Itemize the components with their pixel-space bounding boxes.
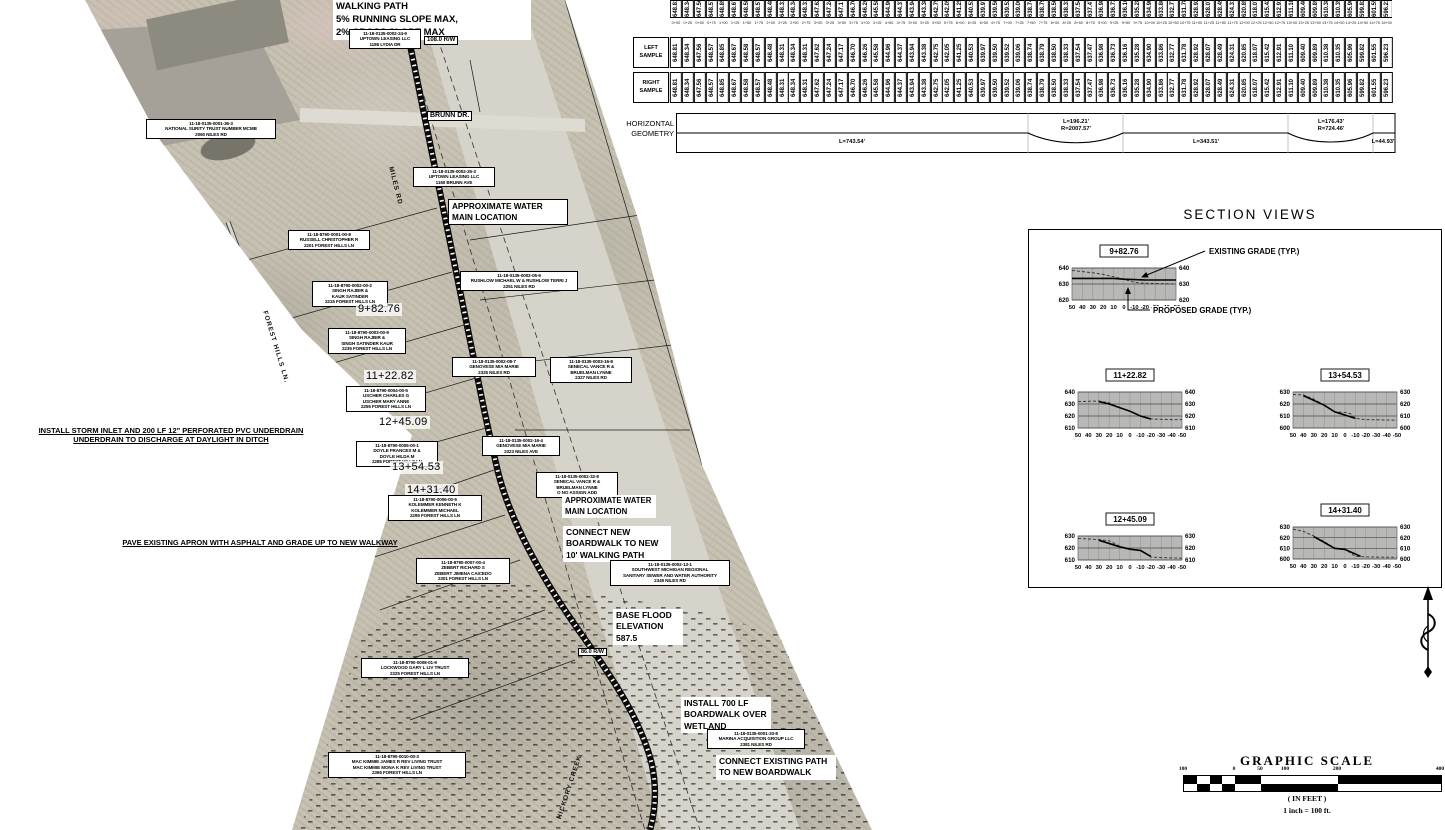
station-cell: 2+25 bbox=[777, 21, 789, 26]
right-sample-cell: 640.53 bbox=[966, 72, 978, 103]
map-station-12-45: 12+45.09 bbox=[377, 416, 430, 429]
svg-text:30: 30 bbox=[1090, 305, 1096, 311]
station-cell: 14+00 bbox=[1333, 21, 1345, 26]
grade-cell: 609.89 bbox=[1310, 0, 1322, 18]
station-cell: 5+75 bbox=[942, 21, 954, 26]
svg-text:13+54.53: 13+54.53 bbox=[1328, 371, 1362, 380]
left-sample-cell: 641.25 bbox=[954, 37, 966, 68]
right-sample-cell: 648.31 bbox=[800, 72, 812, 103]
left-sample-cell: 636.16 bbox=[1120, 37, 1132, 68]
left-sample-cell: 647.56 bbox=[694, 37, 706, 68]
station-cell: 3+75 bbox=[848, 21, 860, 26]
scale-tick-label: 50 bbox=[1257, 766, 1263, 772]
svg-text:40: 40 bbox=[1300, 564, 1306, 570]
parcel-genovese-2323: 11-18-0135-0002-16-4GENOVESE MIA MARIE23… bbox=[482, 436, 560, 456]
station-cell: 13+75 bbox=[1321, 21, 1333, 26]
map-station-9-82: 9+82.76 bbox=[356, 303, 402, 316]
left-sample-cell: 638.74 bbox=[1025, 37, 1037, 68]
grade-cell: 647.24 bbox=[824, 0, 836, 18]
svg-text:L=176.43': L=176.43' bbox=[1318, 119, 1345, 125]
svg-text:620: 620 bbox=[1280, 401, 1291, 408]
left-sample-cell: 611.10 bbox=[1286, 37, 1298, 68]
station-cell: 10+75 bbox=[1179, 21, 1191, 26]
left-sample-cell: 618.07 bbox=[1250, 37, 1262, 68]
water-main-note-2: APPROXIMATE WATERMAIN LOCATION bbox=[562, 495, 656, 518]
station-cell: 3+00 bbox=[812, 21, 824, 26]
left-sample-cell: 648.34 bbox=[788, 37, 800, 68]
right-sample-cell: 648.34 bbox=[788, 72, 800, 103]
svg-text:0: 0 bbox=[1343, 433, 1346, 439]
left-sample-cell: 648.48 bbox=[765, 37, 777, 68]
station-cell: 15+00 bbox=[1381, 21, 1393, 26]
station-cell: 14+75 bbox=[1369, 21, 1381, 26]
station-cell: 9+75 bbox=[1132, 21, 1144, 26]
right-sample-cell: 648.48 bbox=[765, 72, 777, 103]
left-sample-cell: 632.77 bbox=[1167, 37, 1179, 68]
grade-cell: 643.94 bbox=[907, 0, 919, 18]
install-700-note: INSTALL 700 LFBOARDWALK OVERWETLAND bbox=[681, 697, 771, 733]
grade-cell: 596.23 bbox=[1381, 0, 1393, 18]
left-sample-cell: 646.26 bbox=[860, 37, 872, 68]
station-cell: 6+25 bbox=[966, 21, 978, 26]
svg-text:-40: -40 bbox=[1382, 564, 1390, 570]
grade-cell: 638.33 bbox=[1061, 0, 1073, 18]
right-sample-cell: 643.38 bbox=[919, 72, 931, 103]
svg-text:-50: -50 bbox=[1178, 565, 1186, 571]
svg-text:10: 10 bbox=[1110, 305, 1116, 311]
station-cell: 13+25 bbox=[1298, 21, 1310, 26]
svg-text:-50: -50 bbox=[1393, 564, 1401, 570]
grade-cell: 643.38 bbox=[919, 0, 931, 18]
svg-text:-10: -10 bbox=[1136, 565, 1144, 571]
svg-text:630: 630 bbox=[1065, 401, 1076, 408]
right-sample-cell: 596.23 bbox=[1381, 72, 1393, 103]
station-cell: 11+50 bbox=[1215, 21, 1227, 26]
base-flood-note: BASE FLOODELEVATION587.5 bbox=[613, 609, 683, 645]
svg-text:40: 40 bbox=[1300, 433, 1306, 439]
left-sample-cell: 605.96 bbox=[1345, 37, 1357, 68]
parcel-uptown-brunn: 11-18-0135-0002-25-3UPTOWN LEASING LLC11… bbox=[413, 167, 495, 187]
grade-cell: 648.34 bbox=[788, 0, 800, 18]
parcel-rushlow: 11-18-0135-0002-05-9RUSHLOW MICHAEL W & … bbox=[460, 271, 578, 291]
grade-cell: 610.35 bbox=[1333, 0, 1345, 18]
left-sample-cell: 612.91 bbox=[1274, 37, 1286, 68]
graphic-scale-bar bbox=[1183, 775, 1442, 792]
svg-text:-30: -30 bbox=[1372, 433, 1380, 439]
svg-text:-20: -20 bbox=[1141, 305, 1149, 311]
right-sample-cell: 646.26 bbox=[860, 72, 872, 103]
grade-cell: 639.97 bbox=[978, 0, 990, 18]
svg-text:600: 600 bbox=[1400, 425, 1411, 432]
left-sample-cell: 599.82 bbox=[1357, 37, 1369, 68]
left-sample-cell: 638.79 bbox=[1037, 37, 1049, 68]
grade-cell: 640.53 bbox=[966, 0, 978, 18]
svg-text:-40: -40 bbox=[1382, 433, 1390, 439]
parcel-uptown-lydia: 11-18-0135-0002-24-9UPTOWN LEASING LLC11… bbox=[349, 29, 421, 49]
svg-text:30: 30 bbox=[1311, 564, 1317, 570]
svg-text:640: 640 bbox=[1065, 389, 1076, 396]
parcel-genovese-2325: 11-18-0135-0002-08-7GENOVESE MIA MARIE23… bbox=[452, 357, 536, 377]
grade-cell: 648.31 bbox=[777, 0, 789, 18]
svg-text:-20: -20 bbox=[1147, 565, 1155, 571]
grade-cell: 648.58 bbox=[741, 0, 753, 18]
rw-108-label: 108.0 R/W bbox=[424, 36, 458, 45]
station-cell: 5+25 bbox=[919, 21, 931, 26]
grade-cell: 648.34 bbox=[682, 0, 694, 18]
grade-cell: 637.47 bbox=[1085, 0, 1097, 18]
svg-text:14+31.40: 14+31.40 bbox=[1328, 506, 1362, 515]
right-sample-cell: 638.50 bbox=[1049, 72, 1061, 103]
svg-text:L=196.21': L=196.21' bbox=[1063, 119, 1090, 125]
station-cell: 1+25 bbox=[729, 21, 741, 26]
parcel-singh-satinder: 11-18-8790-0003-00-9SINGH RAJBIR &SINGH … bbox=[328, 328, 406, 354]
svg-text:640: 640 bbox=[1059, 265, 1070, 272]
left-sample-cell: 637.47 bbox=[1085, 37, 1097, 68]
station-cell: 4+00 bbox=[860, 21, 872, 26]
left-sample-cell: 642.75 bbox=[931, 37, 943, 68]
station-cell: 14+25 bbox=[1345, 21, 1357, 26]
left-sample-cell: 628.92 bbox=[1191, 37, 1203, 68]
station-cell: 3+25 bbox=[824, 21, 836, 26]
svg-text:-40: -40 bbox=[1167, 433, 1175, 439]
right-sample-cell: 647.17 bbox=[836, 72, 848, 103]
svg-text:610: 610 bbox=[1400, 413, 1411, 420]
left-sample-cell: 633.86 bbox=[1156, 37, 1168, 68]
svg-text:600: 600 bbox=[1280, 556, 1291, 563]
station-cell: 12+75 bbox=[1274, 21, 1286, 26]
grade-cell: 636.98 bbox=[1096, 0, 1108, 18]
right-sample-cell: 610.35 bbox=[1333, 72, 1345, 103]
right-sample-cell: 628.07 bbox=[1203, 72, 1215, 103]
grade-cell: 632.77 bbox=[1167, 0, 1179, 18]
svg-text:-10: -10 bbox=[1351, 564, 1359, 570]
right-sample-cell: 639.97 bbox=[978, 72, 990, 103]
grade-cell: 636.73 bbox=[1108, 0, 1120, 18]
svg-text:40: 40 bbox=[1085, 433, 1091, 439]
parcel-kolemmer: 11-18-8790-0006-00-5KOLEMMER KENNETH KKO… bbox=[388, 495, 482, 521]
right-sample-cell: 648.34 bbox=[682, 72, 694, 103]
right-sample-cell: 648.57 bbox=[753, 72, 765, 103]
svg-text:10: 10 bbox=[1116, 565, 1122, 571]
station-cell: 14+50 bbox=[1357, 21, 1369, 26]
profile-grade-row: 648.81648.34647.56648.57648.85648.67648.… bbox=[670, 0, 1392, 18]
station-cell: 8+75 bbox=[1085, 21, 1097, 26]
right-sample-cell: 638.74 bbox=[1025, 72, 1037, 103]
right-sample-cell: 620.85 bbox=[1239, 72, 1251, 103]
right-sample-cell: 642.05 bbox=[942, 72, 954, 103]
svg-text:12+45.09: 12+45.09 bbox=[1113, 515, 1147, 524]
right-sample-cell: 599.82 bbox=[1357, 72, 1369, 103]
station-cell: 1+00 bbox=[717, 21, 729, 26]
left-sample-cell: 609.40 bbox=[1298, 37, 1310, 68]
left-sample-cell: 601.55 bbox=[1369, 37, 1381, 68]
right-sample-cell: 634.90 bbox=[1144, 72, 1156, 103]
right-sample-cell: 648.58 bbox=[741, 72, 753, 103]
grade-cell: 639.52 bbox=[1002, 0, 1014, 18]
left-sample-cell: 628.49 bbox=[1215, 37, 1227, 68]
right-sample-cell: 609.40 bbox=[1298, 72, 1310, 103]
grade-cell: 628.49 bbox=[1215, 0, 1227, 18]
right-sample-cell: 636.16 bbox=[1120, 72, 1132, 103]
svg-text:10: 10 bbox=[1331, 433, 1337, 439]
parcel-senecal-noadd: 11-18-0135-0002-32-8SENECAL VANCE R &BRU… bbox=[536, 472, 618, 498]
grade-cell: 605.96 bbox=[1345, 0, 1357, 18]
svg-text:610: 610 bbox=[1280, 546, 1291, 553]
svg-text:-20: -20 bbox=[1147, 433, 1155, 439]
scale-tick-label: 100 bbox=[1179, 766, 1187, 772]
right-sample-cell: 638.33 bbox=[1061, 72, 1073, 103]
grade-cell: 610.38 bbox=[1321, 0, 1333, 18]
svg-text:-10: -10 bbox=[1130, 305, 1138, 311]
station-cell: 12+25 bbox=[1250, 21, 1262, 26]
grade-cell: 638.74 bbox=[1025, 0, 1037, 18]
right-sample-cell: 638.79 bbox=[1037, 72, 1049, 103]
station-cell: 13+00 bbox=[1286, 21, 1298, 26]
profile-left-sample-row: 648.81648.34647.56648.57648.85648.67648.… bbox=[670, 37, 1392, 68]
pave-apron-note: PAVE EXISTING APRON WITH ASPHALT AND GRA… bbox=[100, 539, 420, 548]
svg-text:630: 630 bbox=[1280, 389, 1291, 396]
svg-text:620: 620 bbox=[1280, 535, 1291, 542]
left-sample-cell: 610.38 bbox=[1321, 37, 1333, 68]
grade-cell: 601.55 bbox=[1369, 0, 1381, 18]
station-cell: 4+25 bbox=[871, 21, 883, 26]
grade-cell: 624.31 bbox=[1227, 0, 1239, 18]
left-sample-cell: 647.62 bbox=[812, 37, 824, 68]
svg-text:-30: -30 bbox=[1157, 433, 1165, 439]
svg-text:L=343.51': L=343.51' bbox=[1193, 139, 1220, 145]
grade-cell: 646.26 bbox=[860, 0, 872, 18]
right-sample-cell: 628.92 bbox=[1191, 72, 1203, 103]
svg-text:20: 20 bbox=[1100, 305, 1106, 311]
station-cell: 0+25 bbox=[682, 21, 694, 26]
left-sample-cell: 645.58 bbox=[871, 37, 883, 68]
right-sample-cell: 624.31 bbox=[1227, 72, 1239, 103]
grade-cell: 609.40 bbox=[1298, 0, 1310, 18]
station-cell: 0+75 bbox=[706, 21, 718, 26]
right-sample-cell: 615.42 bbox=[1262, 72, 1274, 103]
svg-text:620: 620 bbox=[1059, 297, 1070, 304]
svg-text:600: 600 bbox=[1400, 556, 1411, 563]
station-cell: 13+50 bbox=[1310, 21, 1322, 26]
svg-text:640: 640 bbox=[1179, 265, 1190, 272]
svg-text:620: 620 bbox=[1185, 413, 1196, 420]
station-cell: 4+50 bbox=[883, 21, 895, 26]
svg-text:20: 20 bbox=[1321, 564, 1327, 570]
svg-text:0: 0 bbox=[1343, 564, 1346, 570]
svg-text:30: 30 bbox=[1311, 433, 1317, 439]
north-arrow-icon bbox=[1414, 586, 1442, 678]
right-sample-cell: 647.62 bbox=[812, 72, 824, 103]
horizontal-geometry-diagram: L=743.54' L=196.21' R=2007.57' L=343.51'… bbox=[676, 113, 1396, 153]
left-sample-cell: 648.57 bbox=[706, 37, 718, 68]
grade-cell: 644.37 bbox=[895, 0, 907, 18]
parcel-marina: 11-18-0135-0001-33-8MARINA ACQUISITION G… bbox=[707, 729, 805, 749]
right-sample-cell: 618.07 bbox=[1250, 72, 1262, 103]
left-sample-label: LEFTSAMPLE bbox=[633, 37, 669, 68]
grade-cell: 620.85 bbox=[1239, 0, 1251, 18]
station-cell: 10+50 bbox=[1167, 21, 1179, 26]
grade-cell: 628.92 bbox=[1191, 0, 1203, 18]
svg-text:50: 50 bbox=[1075, 565, 1081, 571]
grade-cell: 637.54 bbox=[1073, 0, 1085, 18]
svg-text:620: 620 bbox=[1179, 297, 1190, 304]
right-sample-cell: 639.06 bbox=[1013, 72, 1025, 103]
connect-boardwalk-note: CONNECT NEWBOARDWALK TO NEW10' WALKING P… bbox=[563, 526, 671, 562]
grade-cell: 633.86 bbox=[1156, 0, 1168, 18]
svg-text:600: 600 bbox=[1280, 425, 1291, 432]
right-sample-cell: 637.47 bbox=[1085, 72, 1097, 103]
svg-text:610: 610 bbox=[1065, 425, 1076, 432]
left-sample-cell: 644.96 bbox=[883, 37, 895, 68]
left-sample-cell: 648.81 bbox=[670, 37, 682, 68]
station-cell: 10+00 bbox=[1144, 21, 1156, 26]
grade-cell: 599.82 bbox=[1357, 0, 1369, 18]
right-sample-cell: 611.10 bbox=[1286, 72, 1298, 103]
grade-cell: 639.06 bbox=[1013, 0, 1025, 18]
right-sample-cell: 646.70 bbox=[848, 72, 860, 103]
svg-text:610: 610 bbox=[1400, 546, 1411, 553]
grade-cell: 639.50 bbox=[990, 0, 1002, 18]
station-cell: 6+50 bbox=[978, 21, 990, 26]
station-cell: 8+25 bbox=[1061, 21, 1073, 26]
left-sample-cell: 643.38 bbox=[919, 37, 931, 68]
left-sample-cell: 636.98 bbox=[1096, 37, 1108, 68]
left-sample-cell: 638.50 bbox=[1049, 37, 1061, 68]
left-sample-cell: 620.85 bbox=[1239, 37, 1251, 68]
svg-text:R=724.46': R=724.46' bbox=[1318, 126, 1345, 132]
plan-sheet: WALKING PATH5% RUNNING SLOPE MAX,2% CROS… bbox=[0, 0, 1445, 830]
station-cell: 1+50 bbox=[741, 21, 753, 26]
left-sample-cell: 635.28 bbox=[1132, 37, 1144, 68]
right-sample-cell: 601.55 bbox=[1369, 72, 1381, 103]
street-brunn-dr: BRUNN DR. bbox=[427, 111, 472, 121]
parcel-lockwood: 11-18-8790-0008-01-9LOCKWOOD GARY L LIV … bbox=[361, 658, 469, 678]
existing-grade-annotation: EXISTING GRADE (TYP.) bbox=[1208, 247, 1300, 256]
right-sample-cell: 648.85 bbox=[717, 72, 729, 103]
svg-text:10: 10 bbox=[1331, 564, 1337, 570]
station-cell: 3+50 bbox=[836, 21, 848, 26]
grade-cell: 638.79 bbox=[1037, 0, 1049, 18]
left-sample-cell: 638.33 bbox=[1061, 37, 1073, 68]
right-sample-cell: 644.96 bbox=[883, 72, 895, 103]
svg-text:R=2007.57': R=2007.57' bbox=[1061, 126, 1092, 132]
left-sample-cell: 648.31 bbox=[777, 37, 789, 68]
right-sample-cell: 628.49 bbox=[1215, 72, 1227, 103]
left-sample-cell: 640.53 bbox=[966, 37, 978, 68]
svg-text:630: 630 bbox=[1179, 281, 1190, 288]
right-sample-cell: 635.28 bbox=[1132, 72, 1144, 103]
svg-text:0: 0 bbox=[1128, 565, 1131, 571]
storm-inlet-note: INSTALL STORM INLET AND 200 LF 12" PERFO… bbox=[30, 427, 312, 445]
svg-text:-40: -40 bbox=[1167, 565, 1175, 571]
proposed-grade-annotation: PROPOSED GRADE (TYP.) bbox=[1152, 306, 1252, 315]
svg-text:9+82.76: 9+82.76 bbox=[1109, 247, 1139, 256]
section-views-title: SECTION VIEWS bbox=[1140, 207, 1360, 222]
right-sample-cell: 648.31 bbox=[777, 72, 789, 103]
grade-cell: 635.28 bbox=[1132, 0, 1144, 18]
grade-cell: 648.81 bbox=[670, 0, 682, 18]
left-sample-cell: 634.90 bbox=[1144, 37, 1156, 68]
right-sample-cell: 639.52 bbox=[1002, 72, 1014, 103]
svg-text:40: 40 bbox=[1085, 565, 1091, 571]
right-sample-cell: 643.94 bbox=[907, 72, 919, 103]
map-station-13-54: 13+54.53 bbox=[390, 461, 443, 474]
station-cell: 10+25 bbox=[1156, 21, 1168, 26]
left-sample-cell: 624.31 bbox=[1227, 37, 1239, 68]
right-sample-cell: 641.25 bbox=[954, 72, 966, 103]
svg-text:10: 10 bbox=[1116, 433, 1122, 439]
left-sample-cell: 648.31 bbox=[800, 37, 812, 68]
left-sample-cell: 646.70 bbox=[848, 37, 860, 68]
grade-cell: 646.70 bbox=[848, 0, 860, 18]
grade-cell: 611.10 bbox=[1286, 0, 1298, 18]
map-station-11-22: 11+22.82 bbox=[364, 370, 416, 383]
svg-text:50: 50 bbox=[1069, 305, 1075, 311]
left-sample-cell: 648.57 bbox=[753, 37, 765, 68]
grade-cell: 648.31 bbox=[800, 0, 812, 18]
graphic-scale-ratio: 1 inch = 100 ft. bbox=[1207, 806, 1407, 815]
svg-text:640: 640 bbox=[1185, 389, 1196, 396]
scale-tick-label: 200 bbox=[1333, 766, 1341, 772]
svg-text:50: 50 bbox=[1075, 433, 1081, 439]
grade-cell: 631.78 bbox=[1179, 0, 1191, 18]
svg-text:610: 610 bbox=[1065, 557, 1076, 564]
svg-text:11+22.82: 11+22.82 bbox=[1113, 371, 1147, 380]
parcel-russell: 11-18-8790-0001-00-8RUSSELL CHRISTOPHER … bbox=[288, 230, 370, 250]
svg-text:630: 630 bbox=[1400, 524, 1411, 531]
svg-text:-20: -20 bbox=[1362, 433, 1370, 439]
profile-right-sample-row: 648.81648.34647.56648.57648.85648.67648.… bbox=[670, 72, 1392, 103]
left-sample-cell: 647.17 bbox=[836, 37, 848, 68]
station-cell: 1+75 bbox=[753, 21, 765, 26]
left-sample-cell: 609.89 bbox=[1310, 37, 1322, 68]
left-sample-cell: 648.58 bbox=[741, 37, 753, 68]
grade-cell: 636.16 bbox=[1120, 0, 1132, 18]
left-sample-cell: 637.54 bbox=[1073, 37, 1085, 68]
grade-cell: 612.91 bbox=[1274, 0, 1286, 18]
left-sample-cell: 639.97 bbox=[978, 37, 990, 68]
station-cell: 2+00 bbox=[765, 21, 777, 26]
grade-cell: 628.07 bbox=[1203, 0, 1215, 18]
left-sample-cell: 631.78 bbox=[1179, 37, 1191, 68]
graphic-scale-units: ( IN FEET ) bbox=[1207, 794, 1407, 803]
right-sample-cell: 631.78 bbox=[1179, 72, 1191, 103]
svg-text:620: 620 bbox=[1400, 401, 1411, 408]
station-cell: 5+50 bbox=[931, 21, 943, 26]
grade-cell: 645.58 bbox=[871, 0, 883, 18]
left-sample-cell: 644.37 bbox=[895, 37, 907, 68]
svg-text:-50: -50 bbox=[1393, 433, 1401, 439]
svg-text:620: 620 bbox=[1185, 545, 1196, 552]
svg-text:20: 20 bbox=[1106, 433, 1112, 439]
left-sample-cell: 648.67 bbox=[729, 37, 741, 68]
parcel-national-surity: 11-18-0135-0001-36-3NATIONAL SURITY TRUS… bbox=[146, 119, 276, 139]
svg-text:-10: -10 bbox=[1136, 433, 1144, 439]
station-cell: 9+50 bbox=[1120, 21, 1132, 26]
svg-text:50: 50 bbox=[1290, 564, 1296, 570]
svg-text:50: 50 bbox=[1290, 433, 1296, 439]
svg-text:-50: -50 bbox=[1178, 433, 1186, 439]
grade-cell: 648.67 bbox=[729, 0, 741, 18]
right-sample-cell: 636.98 bbox=[1096, 72, 1108, 103]
station-cell: 4+75 bbox=[895, 21, 907, 26]
left-sample-cell: 643.94 bbox=[907, 37, 919, 68]
svg-text:30: 30 bbox=[1096, 565, 1102, 571]
right-sample-cell: 637.54 bbox=[1073, 72, 1085, 103]
grade-cell: 641.25 bbox=[954, 0, 966, 18]
station-cell: 7+75 bbox=[1037, 21, 1049, 26]
station-cell: 7+00 bbox=[1002, 21, 1014, 26]
